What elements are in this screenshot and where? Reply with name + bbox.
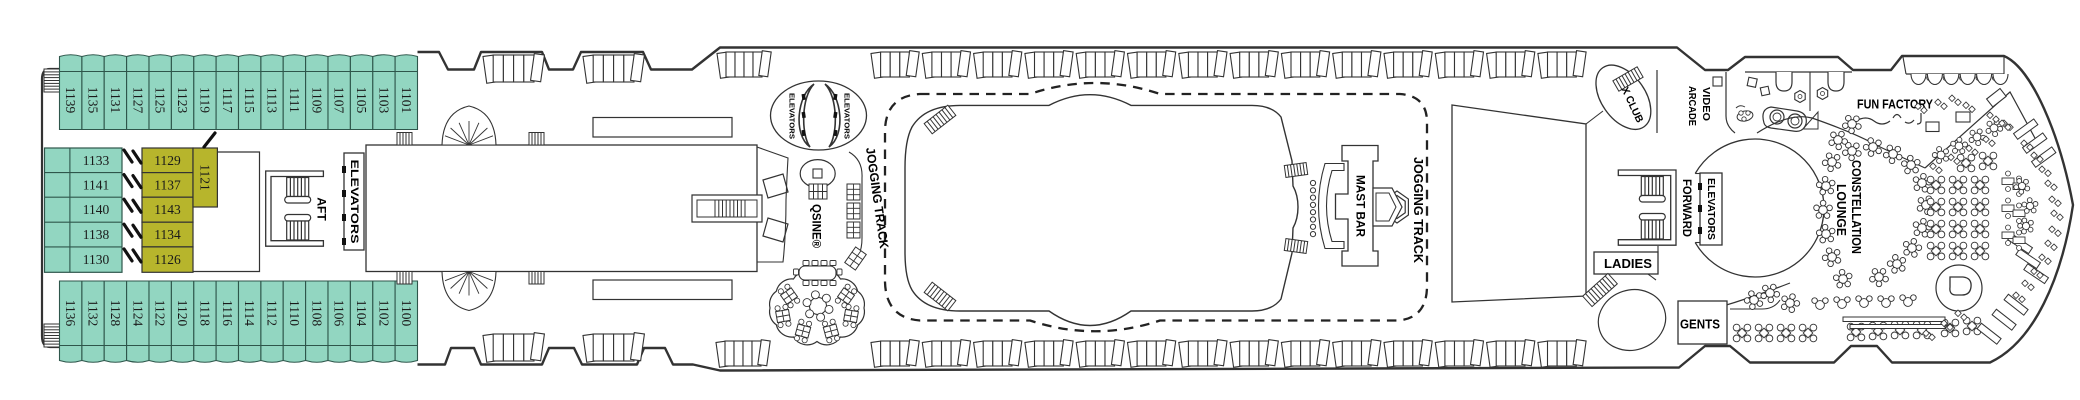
svg-text:1115: 1115 — [242, 87, 257, 113]
svg-text:1141: 1141 — [83, 177, 110, 192]
svg-text:ARCADE: ARCADE — [1686, 86, 1698, 126]
svg-text:LADIES: LADIES — [1604, 256, 1652, 271]
svg-text:1140: 1140 — [83, 202, 110, 217]
svg-text:1110: 1110 — [287, 300, 302, 326]
svg-text:1139: 1139 — [63, 87, 78, 114]
svg-text:1122: 1122 — [153, 300, 168, 327]
svg-text:1137: 1137 — [154, 177, 181, 192]
svg-text:1105: 1105 — [354, 87, 369, 114]
svg-text:1117: 1117 — [220, 87, 235, 113]
svg-text:1130: 1130 — [83, 252, 110, 267]
svg-text:1111: 1111 — [287, 87, 302, 113]
svg-text:1108: 1108 — [309, 300, 324, 327]
svg-text:1133: 1133 — [83, 153, 110, 168]
svg-text:1132: 1132 — [86, 300, 101, 327]
svg-text:LOUNGE: LOUNGE — [1834, 184, 1848, 236]
svg-text:1135: 1135 — [86, 87, 101, 114]
svg-text:1112: 1112 — [265, 300, 280, 326]
svg-text:1106: 1106 — [332, 300, 347, 327]
svg-text:1107: 1107 — [332, 87, 347, 114]
svg-text:1114: 1114 — [242, 300, 257, 326]
svg-text:1121: 1121 — [198, 164, 213, 191]
svg-text:ELEVATORS: ELEVATORS — [1705, 178, 1717, 240]
svg-text:1123: 1123 — [175, 87, 190, 114]
svg-text:1128: 1128 — [108, 300, 123, 327]
svg-text:QSINE®: QSINE® — [810, 204, 824, 248]
svg-text:1100: 1100 — [399, 300, 414, 327]
svg-text:1125: 1125 — [153, 87, 168, 114]
svg-text:AFT: AFT — [315, 197, 329, 221]
svg-text:1138: 1138 — [83, 227, 110, 242]
svg-text:ELEVATORS: ELEVATORS — [788, 93, 797, 139]
svg-text:ELEVATORS: ELEVATORS — [843, 93, 852, 139]
svg-text:CONSTELLATION: CONSTELLATION — [1849, 160, 1863, 254]
svg-text:JOGGING TRACK: JOGGING TRACK — [1411, 157, 1425, 263]
svg-text:FORWARD: FORWARD — [1680, 179, 1692, 237]
svg-text:1126: 1126 — [154, 252, 181, 267]
svg-text:1104: 1104 — [354, 300, 369, 327]
svg-text:1101: 1101 — [399, 87, 414, 114]
svg-text:MAST BAR: MAST BAR — [1354, 175, 1368, 237]
svg-text:1120: 1120 — [175, 300, 190, 327]
svg-text:1118: 1118 — [197, 300, 212, 326]
svg-text:1134: 1134 — [154, 227, 181, 242]
svg-text:VIDEO: VIDEO — [1700, 87, 1712, 121]
svg-text:1143: 1143 — [154, 202, 181, 217]
svg-text:1119: 1119 — [197, 87, 212, 113]
svg-text:1127: 1127 — [130, 87, 145, 114]
svg-text:1131: 1131 — [108, 87, 123, 114]
svg-text:1136: 1136 — [63, 300, 78, 327]
svg-text:1129: 1129 — [154, 153, 181, 168]
svg-text:GENTS: GENTS — [1680, 317, 1720, 332]
svg-text:1116: 1116 — [220, 300, 235, 326]
svg-text:1113: 1113 — [265, 87, 280, 113]
svg-text:1124: 1124 — [130, 300, 145, 327]
svg-text:1102: 1102 — [376, 300, 391, 327]
svg-text:1109: 1109 — [309, 87, 324, 114]
svg-text:1103: 1103 — [376, 87, 391, 114]
svg-text:ELEVATORS: ELEVATORS — [348, 160, 360, 244]
